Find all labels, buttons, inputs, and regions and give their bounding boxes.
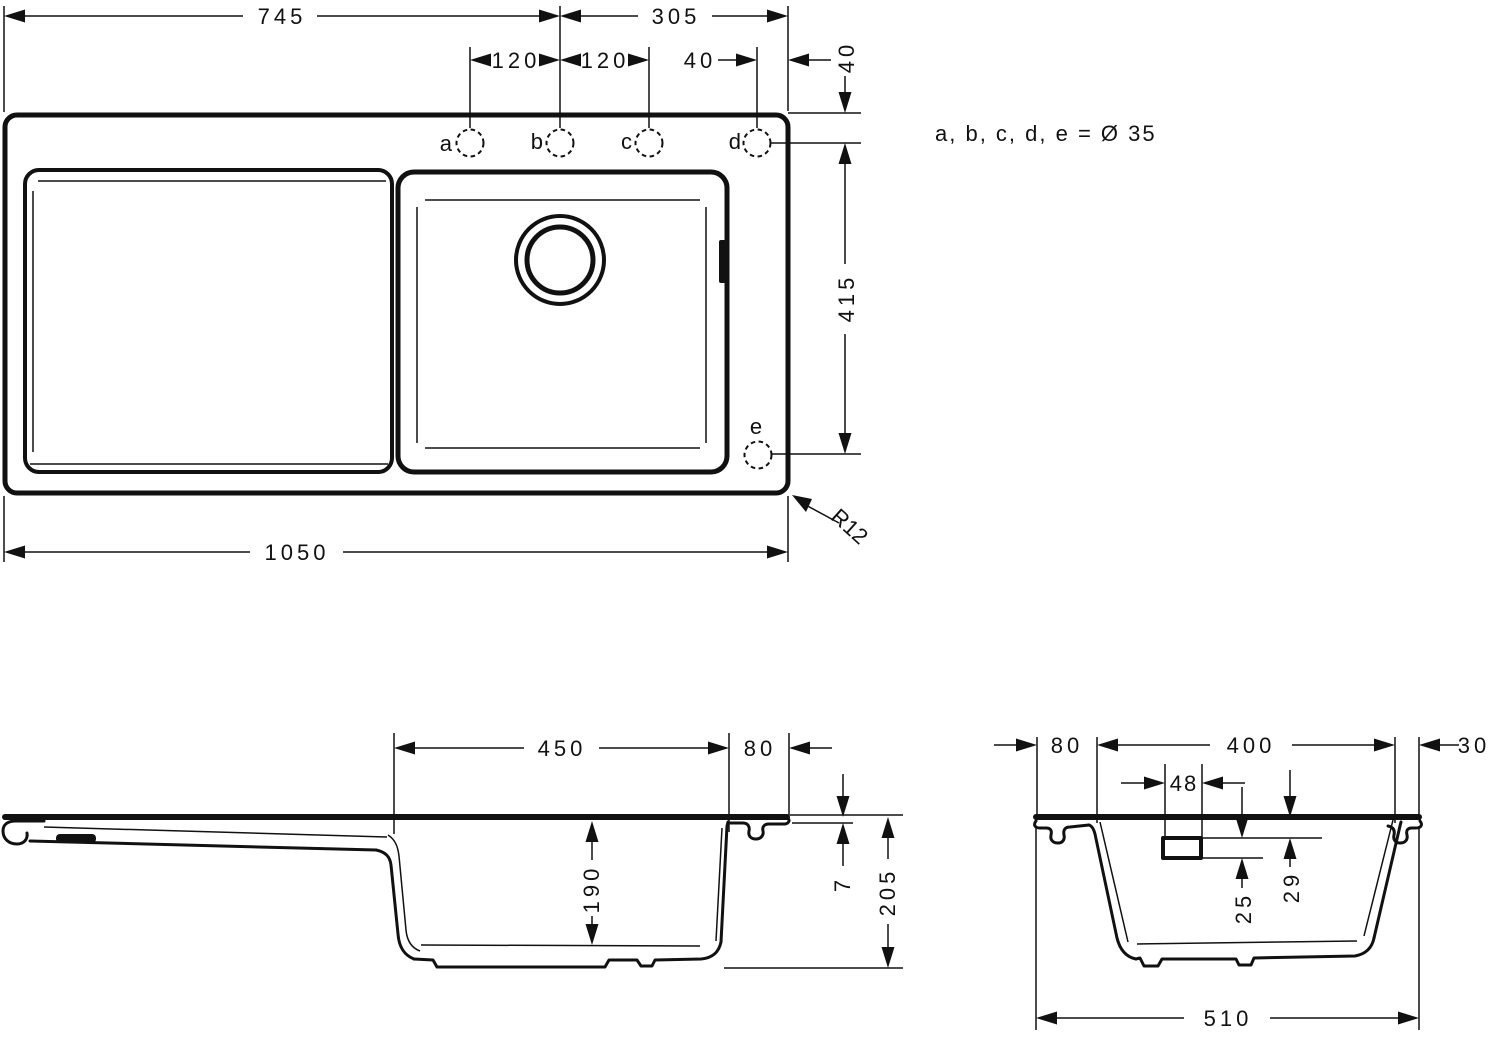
arrowhead (628, 54, 649, 67)
arrowhead (882, 817, 895, 838)
hole-b (547, 130, 574, 157)
right-drip-edge (729, 818, 789, 839)
sink-technical-drawing: a b c d e 745 305 120 120 40 (0, 0, 1500, 1039)
arrowhead (1144, 777, 1165, 790)
arrowhead (1419, 739, 1440, 752)
arrowhead (839, 143, 852, 164)
dim-40-vertical: 40 (834, 41, 859, 73)
arrowhead (788, 54, 809, 67)
dim-305: 305 (652, 4, 701, 29)
dim-415: 415 (834, 274, 859, 323)
arrowhead (708, 742, 729, 755)
arrowhead (394, 742, 415, 755)
arrowhead (1236, 858, 1249, 879)
dim-1050: 1050 (265, 540, 330, 565)
hole-d (744, 130, 771, 157)
arrowhead (1398, 1012, 1419, 1025)
dim-48: 48 (1170, 771, 1198, 796)
dim-80-front: 80 (744, 736, 776, 761)
side-section-view: 80 400 30 48 25 29 (994, 733, 1490, 1031)
arrowhead (1036, 1012, 1057, 1025)
arrowhead (1236, 817, 1249, 838)
worktop-surface (1033, 814, 1422, 820)
drain-inner-circle (527, 227, 593, 293)
arrowhead (539, 10, 560, 23)
bowl-left-wall-outer (376, 850, 414, 959)
arrowhead (837, 796, 850, 817)
dim-40-horizontal: 40 (684, 48, 716, 73)
hole-diameter-note: a, b, c, d, e = Ø 35 (935, 121, 1157, 146)
technical-drawing-page: a b c d e 745 305 120 120 40 (0, 0, 1500, 1039)
bowl-left-wall-outer (1089, 825, 1136, 959)
arrowhead (767, 10, 788, 23)
arrowhead (586, 821, 599, 842)
drainboard-underside-line (44, 827, 387, 837)
arrowhead (1097, 739, 1118, 752)
dim-7: 7 (830, 876, 855, 892)
bowl-bottom-inner (421, 945, 700, 946)
left-drip-edge (1035, 821, 1089, 843)
front-section-view: 450 80 190 7 205 (2, 733, 903, 968)
arrowhead (789, 742, 810, 755)
hole-e (745, 442, 772, 469)
dim-205: 205 (875, 868, 900, 917)
hole-label-a: a (440, 131, 453, 156)
bowl-bottom-inner (1137, 941, 1357, 944)
arrowhead (586, 924, 599, 945)
arrowhead (839, 433, 852, 454)
hole-label-e: e (750, 414, 762, 439)
overflow-opening (1163, 838, 1201, 858)
top-view: a b c d e 745 305 120 120 40 (4, 4, 873, 565)
arrowhead (767, 546, 788, 559)
dim-30: 30 (1458, 733, 1490, 758)
hole-label-d: d (729, 129, 741, 154)
arrowhead (1374, 739, 1395, 752)
hole-label-c: c (621, 129, 632, 154)
dim-80-side: 80 (1051, 733, 1083, 758)
overflow-notch (719, 240, 726, 283)
arrowhead (1016, 739, 1037, 752)
dim-190: 190 (579, 865, 604, 914)
arrowhead (736, 54, 757, 67)
hole-label-b: b (531, 129, 543, 154)
dim-r12: R12 (826, 504, 873, 550)
dim-450: 450 (538, 736, 587, 761)
arrowhead (560, 10, 581, 23)
dim-29: 29 (1279, 871, 1304, 903)
arrowhead (1202, 777, 1223, 790)
arrowhead (1284, 838, 1297, 859)
dim-400: 400 (1227, 733, 1276, 758)
arrowhead (839, 92, 852, 113)
arrowhead (4, 10, 25, 23)
dim-120-bc: 120 (581, 48, 630, 73)
dim-510: 510 (1204, 1006, 1253, 1031)
arrowhead (837, 823, 850, 844)
arrowhead (4, 546, 25, 559)
hole-c (636, 130, 663, 157)
arrowhead (470, 54, 491, 67)
arrowhead (560, 54, 581, 67)
arrowhead (882, 947, 895, 968)
arrowhead (539, 54, 560, 67)
hole-a (457, 130, 484, 157)
dim-25: 25 (1231, 892, 1256, 924)
dim-745: 745 (258, 4, 307, 29)
arrowhead (1284, 796, 1297, 817)
drainboard-bottom-edge (30, 841, 376, 850)
dim-120-ab: 120 (492, 48, 541, 73)
right-drip-edge (1388, 821, 1421, 843)
worktop-surface (2, 814, 790, 820)
drainboard-outline (25, 170, 392, 472)
